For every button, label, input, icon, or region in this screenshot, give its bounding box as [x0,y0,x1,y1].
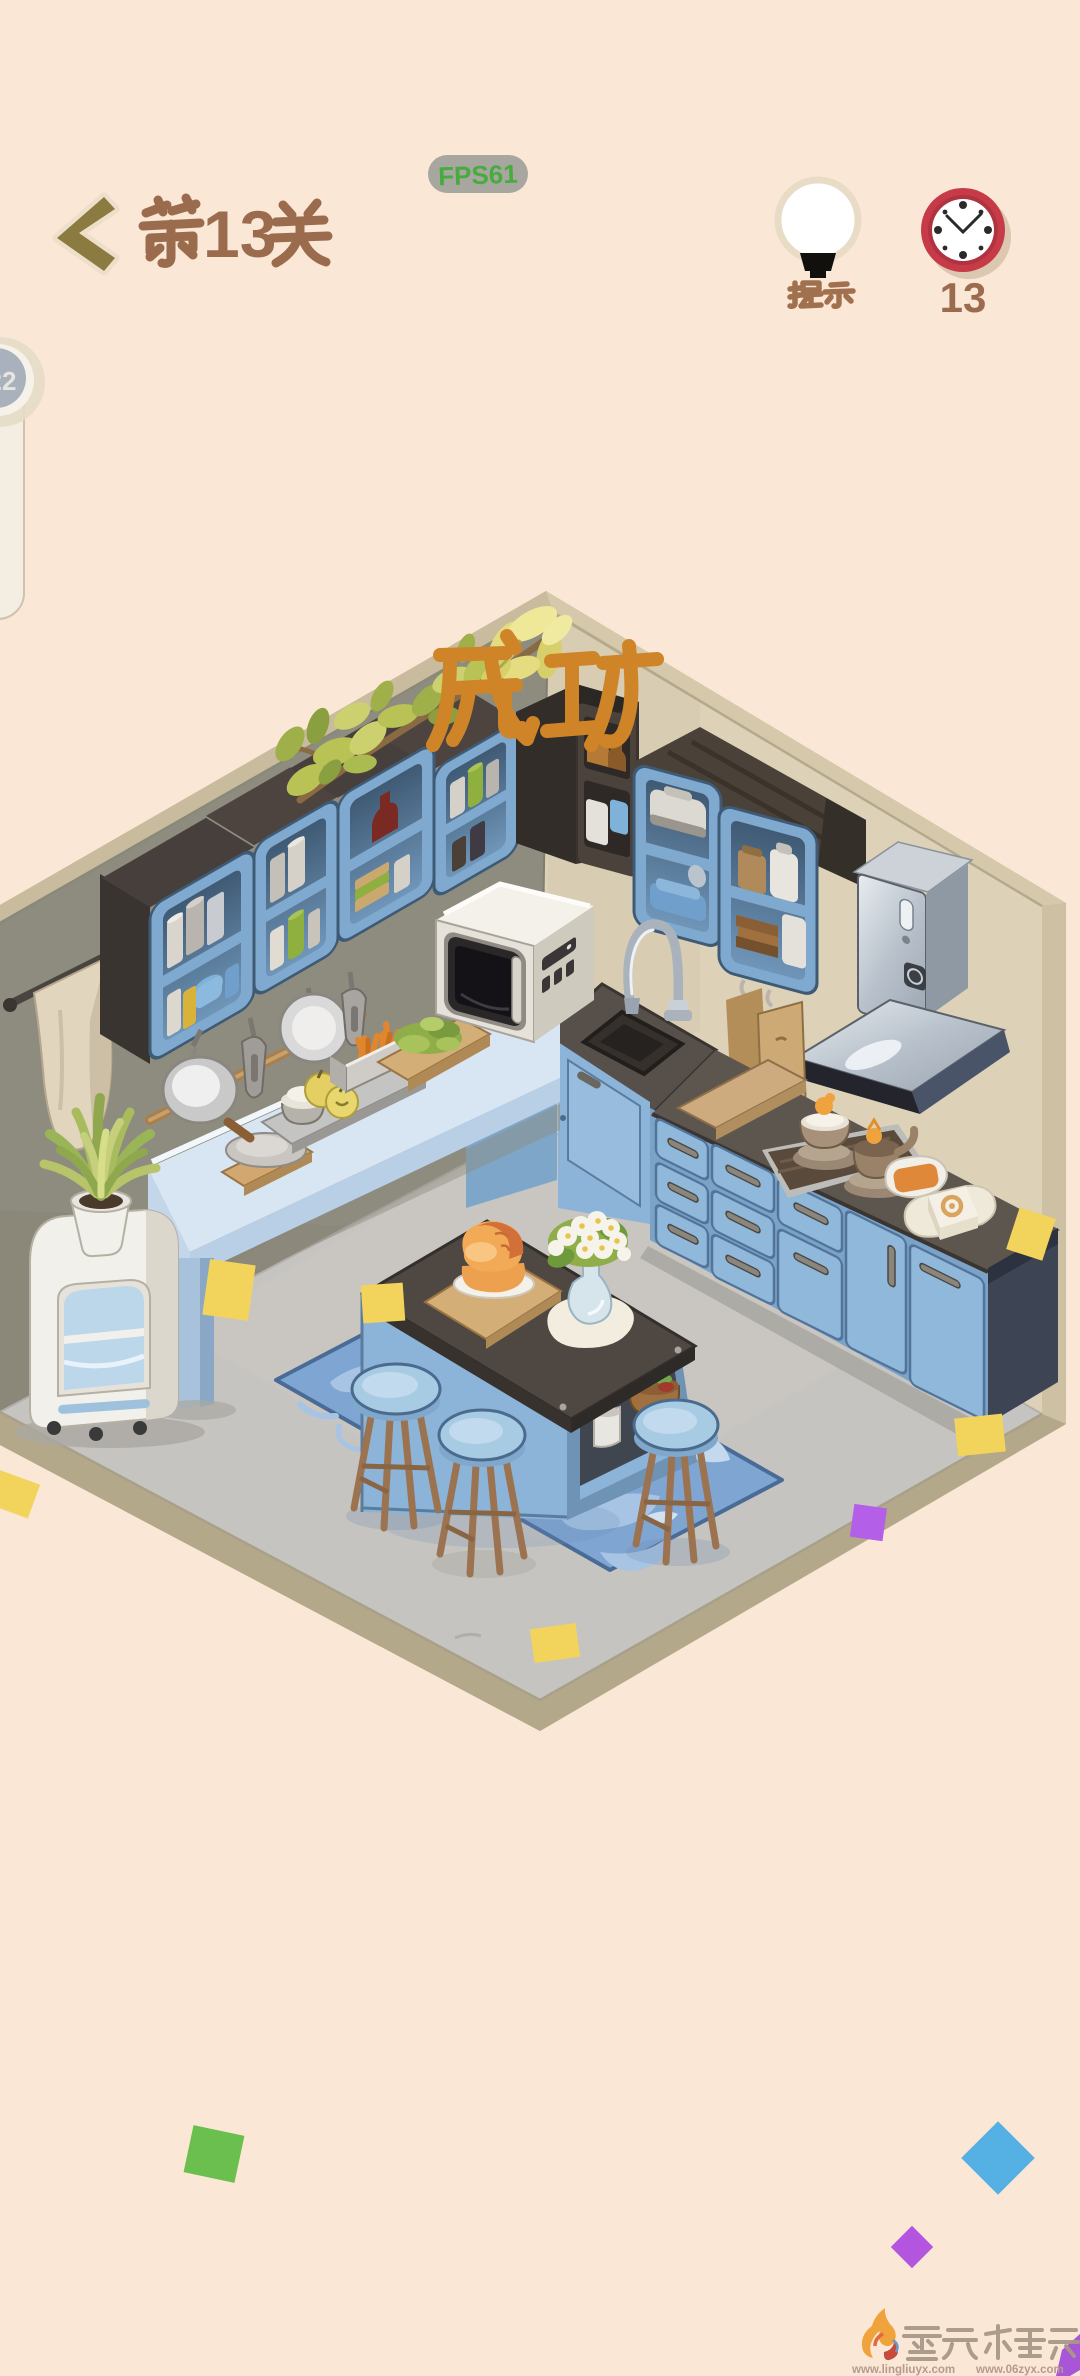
svg-text:22: 22 [0,366,16,396]
svg-text:13: 13 [203,197,276,271]
svg-text:13: 13 [940,274,987,321]
svg-text:www.lingliuyx.com: www.lingliuyx.com [851,2364,955,2376]
svg-text:FPS61: FPS61 [438,159,518,192]
svg-text:www.06zyx.com: www.06zyx.com [975,2364,1064,2376]
